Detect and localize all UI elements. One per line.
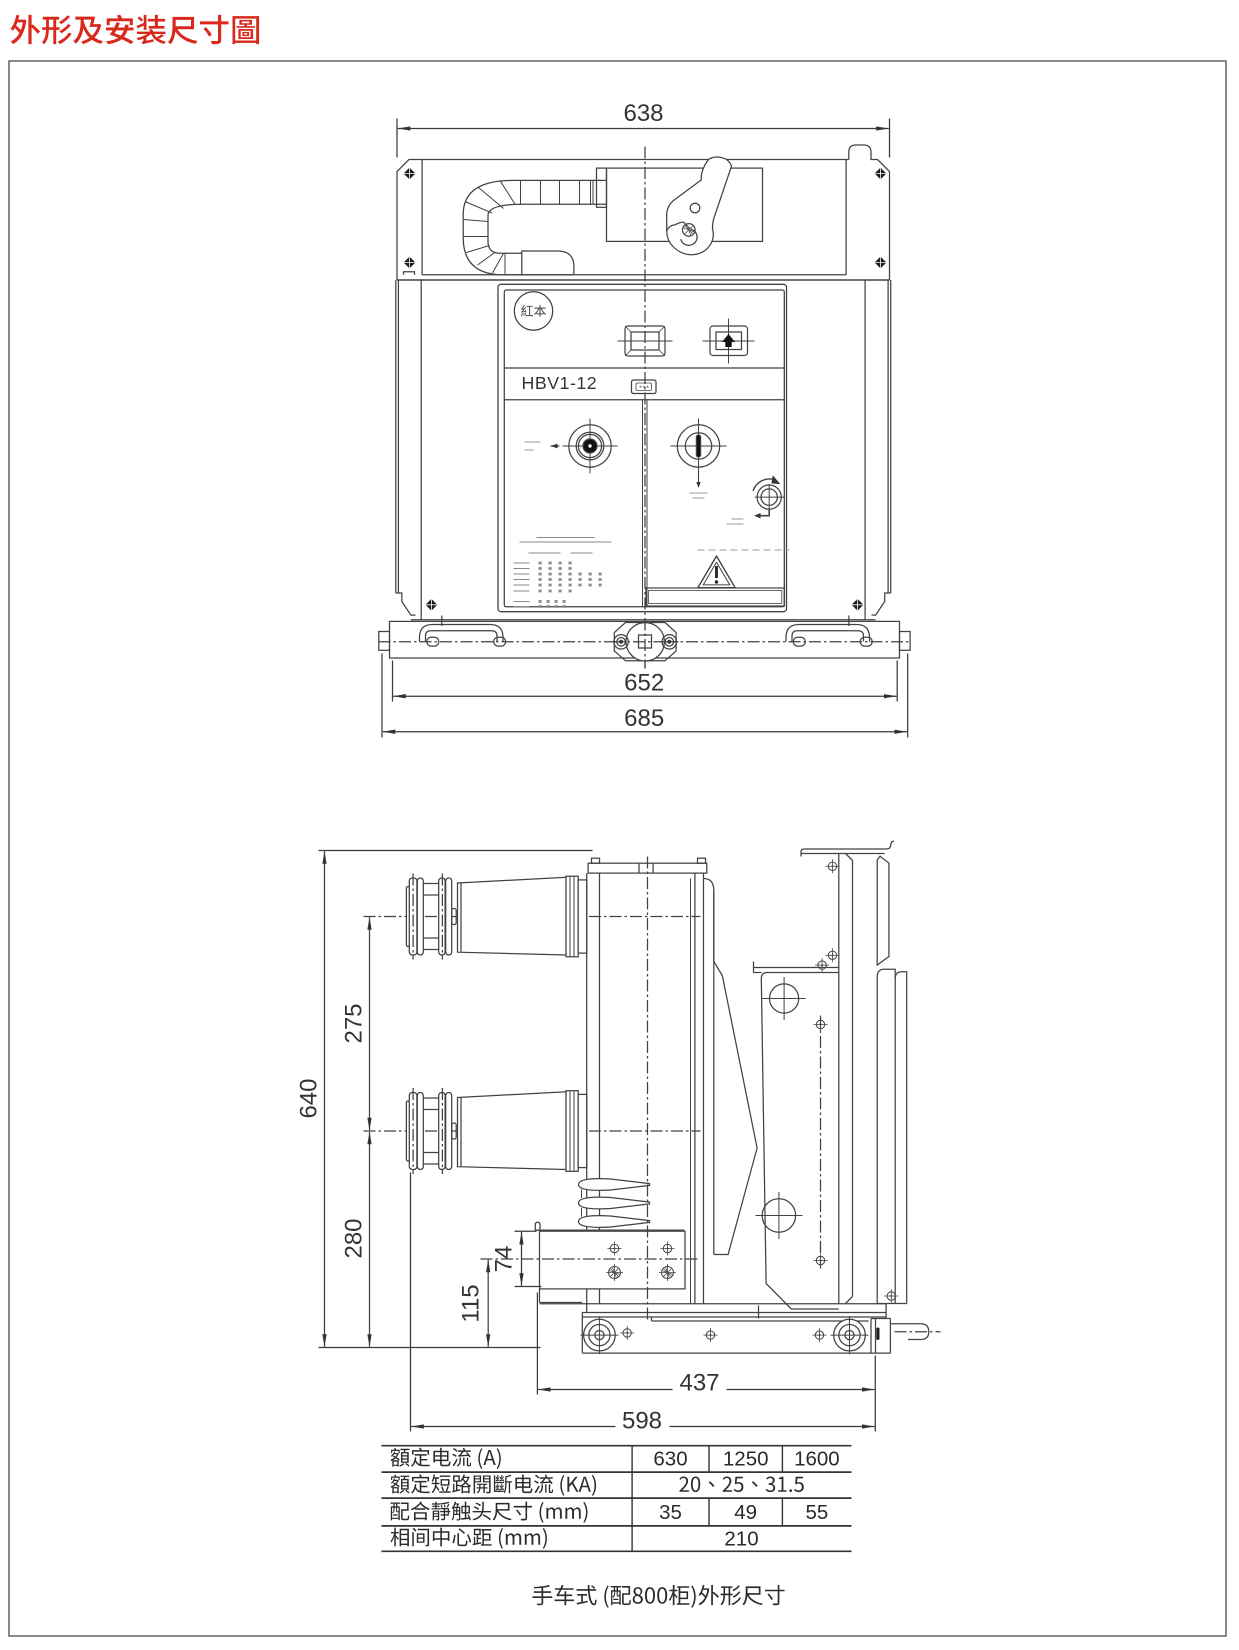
svg-text:1600: 1600 [794,1448,840,1471]
svg-text:210: 210 [724,1528,758,1551]
svg-text:275: 275 [341,1003,368,1043]
svg-text:598: 598 [622,1408,662,1435]
svg-text:638: 638 [623,100,663,127]
svg-text:685: 685 [624,705,664,732]
svg-text:115: 115 [458,1284,485,1322]
svg-text:1250: 1250 [723,1448,769,1471]
svg-text:HBV1-12: HBV1-12 [522,373,598,393]
svg-text:55: 55 [805,1501,828,1524]
svg-text:630: 630 [653,1448,687,1471]
svg-text:49: 49 [734,1501,757,1524]
svg-text:280: 280 [341,1218,368,1258]
svg-text:74: 74 [491,1246,518,1273]
svg-text:437: 437 [679,1370,719,1397]
svg-text:652: 652 [624,670,664,697]
svg-text:35: 35 [659,1501,682,1524]
svg-text:640: 640 [296,1078,323,1118]
